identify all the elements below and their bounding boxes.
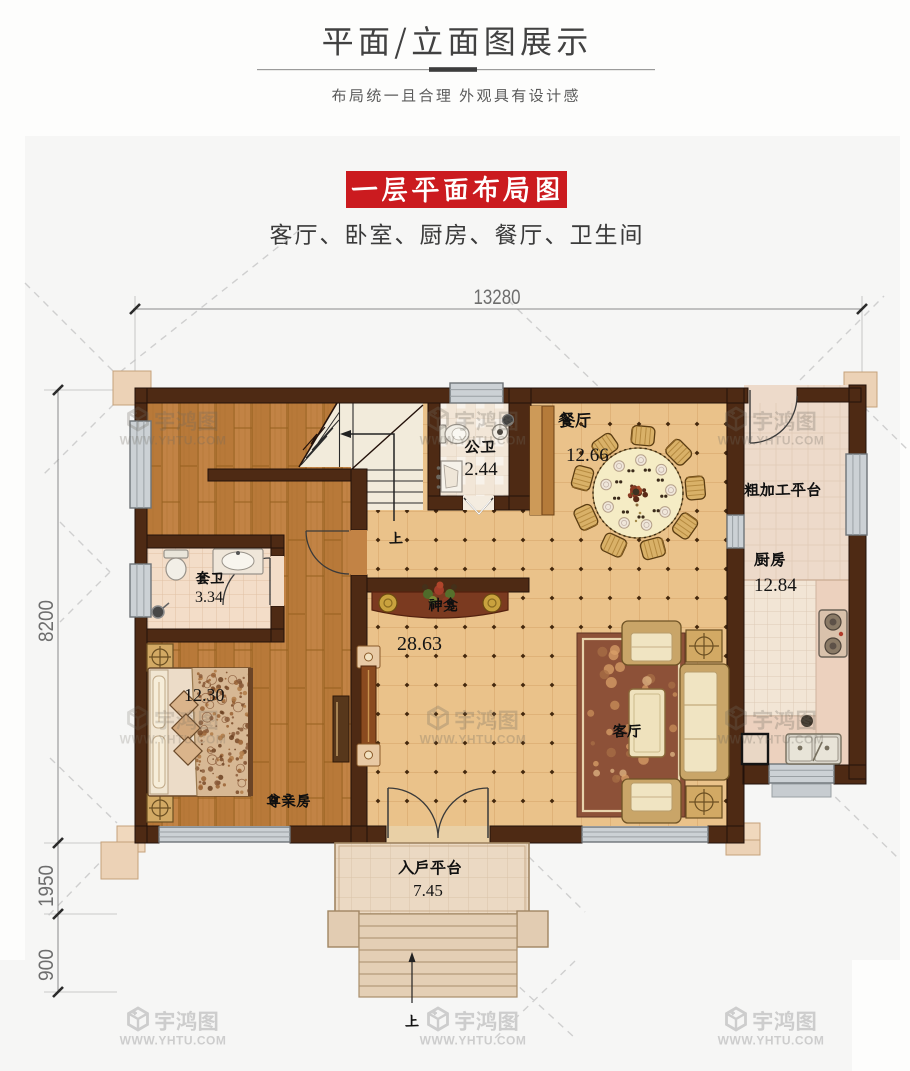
svg-text:WWW.YHTU.COM: WWW.YHTU.COM <box>420 434 527 448</box>
svg-text:12.84: 12.84 <box>754 575 797 596</box>
svg-text:WWW.YHTU.COM: WWW.YHTU.COM <box>718 434 825 448</box>
svg-text:WWW.YHTU.COM: WWW.YHTU.COM <box>120 733 227 747</box>
svg-text:WWW.YHTU.COM: WWW.YHTU.COM <box>718 1034 825 1048</box>
svg-text:12.66: 12.66 <box>566 445 609 466</box>
svg-text:900: 900 <box>35 949 58 981</box>
svg-text:2.44: 2.44 <box>464 459 498 480</box>
svg-text:13280: 13280 <box>474 286 521 309</box>
svg-text:WWW.YHTU.COM: WWW.YHTU.COM <box>420 733 527 747</box>
svg-text:12.30: 12.30 <box>184 685 225 705</box>
svg-text:28.63: 28.63 <box>397 633 442 655</box>
svg-text:WWW.YHTU.COM: WWW.YHTU.COM <box>718 733 825 747</box>
svg-text:WWW.YHTU.COM: WWW.YHTU.COM <box>120 434 227 448</box>
svg-text:8200: 8200 <box>35 600 58 642</box>
svg-text:7.45: 7.45 <box>413 881 443 900</box>
svg-text:1950: 1950 <box>35 865 58 907</box>
svg-text:3.34: 3.34 <box>195 589 223 606</box>
svg-text:WWW.YHTU.COM: WWW.YHTU.COM <box>120 1034 227 1048</box>
svg-text:WWW.YHTU.COM: WWW.YHTU.COM <box>420 1034 527 1048</box>
